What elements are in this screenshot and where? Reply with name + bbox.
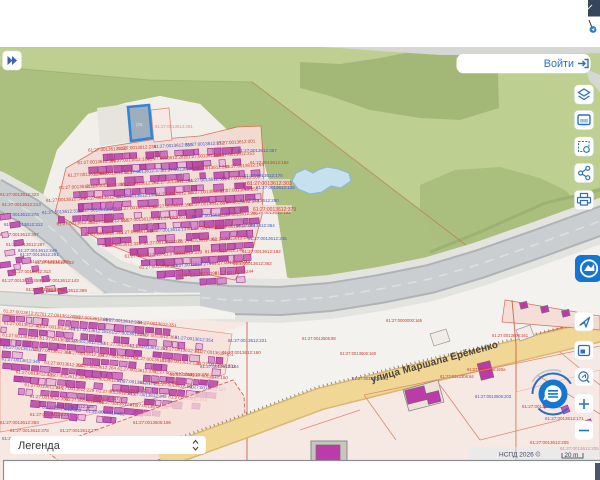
svg-text:61:27:0013612:325: 61:27:0013612:325 — [55, 404, 94, 409]
svg-text:61:27:0013612:290: 61:27:0013612:290 — [240, 198, 279, 203]
svg-text:61:27:0013612:297: 61:27:0013612:297 — [6, 242, 45, 247]
svg-text:61:27:0013612:369: 61:27:0013612:369 — [48, 288, 87, 293]
svg-text:61:27:0013612:116: 61:27:0013612:116 — [140, 380, 179, 385]
svg-text:Войти: Войти — [544, 58, 574, 70]
svg-text:61:27:0013612:143: 61:27:0013612:143 — [40, 278, 79, 283]
svg-text:61:27:0013506:203: 61:27:0013506:203 — [352, 376, 389, 381]
svg-text:61:27:0013506:160: 61:27:0013506:160 — [340, 351, 377, 356]
svg-text:61:27:0013505:88: 61:27:0013505:88 — [302, 336, 336, 341]
svg-text:61:27:0013612:182: 61:27:0013612:182 — [242, 249, 281, 254]
svg-text:(28: (28 — [136, 122, 143, 127]
svg-text:61:27:0013612:379: 61:27:0013612:379 — [253, 207, 296, 213]
svg-text:НСПД 2026 ©: НСПД 2026 © — [499, 451, 541, 459]
svg-text:61:27:0013505:186: 61:27:0013505:186 — [133, 420, 171, 425]
svg-text:61:27:0013612:393: 61:27:0013612:393 — [0, 420, 39, 425]
svg-text:61:27:0013612:323: 61:27:0013612:323 — [0, 192, 39, 197]
svg-text:61:27:0013612:205: 61:27:0013612:205 — [530, 440, 569, 445]
svg-text:61:27:0013612:357: 61:27:0013612:357 — [238, 148, 277, 153]
svg-text:61:27:0013612:280: 61:27:0013612:280 — [30, 259, 69, 264]
svg-text:61:27:0013612:213: 61:27:0013612:213 — [2, 202, 41, 207]
svg-text:61:27:0013612:170: 61:27:0013612:170 — [244, 173, 283, 178]
svg-text:61:27:0013612:226: 61:27:0013612:226 — [110, 388, 149, 393]
svg-text:61:27:0013612:221: 61:27:0013612:221 — [228, 338, 267, 343]
svg-text:61:27:0013612:144: 61:27:0013612:144 — [200, 364, 239, 369]
svg-text:61:27:0013612:160: 61:27:0013612:160 — [222, 350, 261, 355]
svg-text:20 m: 20 m — [565, 452, 579, 459]
svg-text:61:27:0013506:203: 61:27:0013506:203 — [475, 394, 512, 399]
svg-text:61:27:0013612:378: 61:27:0013612:378 — [10, 428, 49, 433]
svg-text:61:27:0013612:362: 61:27:0013612:362 — [233, 261, 272, 266]
svg-text:61:27:0013612:171: 61:27:0013612:171 — [545, 416, 584, 421]
svg-text:61:27:0013612:303: 61:27:0013612:303 — [247, 181, 292, 187]
svg-text:61:27:0013612:182: 61:27:0013612:182 — [250, 160, 289, 165]
svg-text:61:27:0013506:161: 61:27:0013506:161 — [492, 333, 529, 338]
svg-text:61:27:0013612:359: 61:27:0013612:359 — [2, 278, 41, 283]
svg-text:Легенда: Легенда — [18, 440, 61, 452]
svg-text:61:27:0013612:364: 61:27:0013612:364 — [236, 223, 275, 228]
svg-text:61:27:0013612:245: 61:27:0013612:245 — [248, 236, 287, 241]
svg-text:61:27:0013612:281: 61:27:0013612:281 — [155, 124, 193, 129]
svg-text:61:27:0013612:121: 61:27:0013612:121 — [30, 412, 69, 417]
svg-text:61:27:0013612:249: 61:27:0013612:249 — [18, 248, 57, 253]
svg-text:61:27:0013612:278: 61:27:0013612:278 — [170, 372, 209, 377]
svg-text:61:27:0000000:165: 61:27:0000000:165 — [386, 318, 423, 323]
svg-text:61:27:0013612:313: 61:27:0013612:313 — [12, 269, 51, 274]
svg-text:61:27:0013612:317: 61:27:0013612:317 — [80, 396, 119, 401]
